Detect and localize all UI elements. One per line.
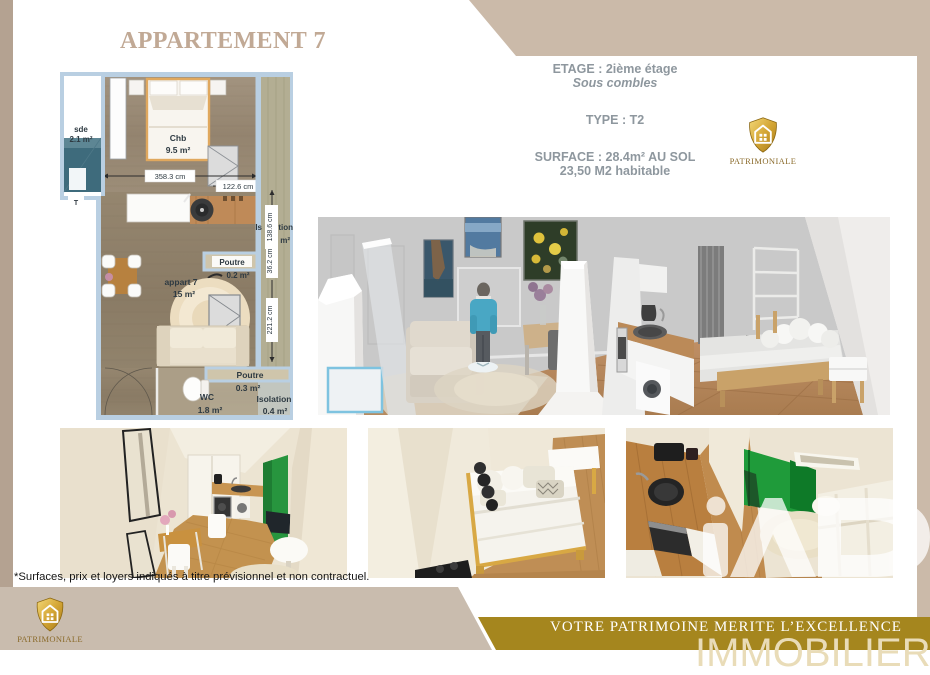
svg-text:Is: Is <box>255 223 262 232</box>
svg-text:T: T <box>74 200 79 207</box>
svg-text:WC: WC <box>200 392 214 402</box>
svg-text:0.2 m²: 0.2 m² <box>226 271 249 280</box>
svg-text:Chb: Chb <box>170 133 187 143</box>
svg-text:0.3 m²: 0.3 m² <box>236 383 261 393</box>
svg-text:36.2 cm: 36.2 cm <box>267 248 274 273</box>
svg-text:appart 7: appart 7 <box>164 277 197 287</box>
svg-text:358.3 cm: 358.3 cm <box>155 172 186 181</box>
svg-text:1.8 m²: 1.8 m² <box>198 405 223 415</box>
svg-text:138.6 cm: 138.6 cm <box>267 212 274 241</box>
svg-text:2.1 m²: 2.1 m² <box>69 135 92 144</box>
svg-text:0.4 m²: 0.4 m² <box>263 406 288 416</box>
svg-text:221.2 cm: 221.2 cm <box>267 305 274 334</box>
svg-text:9.5 m²: 9.5 m² <box>166 145 191 155</box>
svg-text:Isolation: Isolation <box>257 394 292 404</box>
svg-text:Poutre: Poutre <box>219 258 245 267</box>
svg-text:tion: tion <box>278 223 293 232</box>
svg-text:sde: sde <box>74 125 88 134</box>
svg-text:m²: m² <box>280 236 290 245</box>
svg-text:122.6 cm: 122.6 cm <box>223 182 254 191</box>
svg-text:Poutre: Poutre <box>237 370 264 380</box>
svg-text:15 m²: 15 m² <box>173 289 195 299</box>
